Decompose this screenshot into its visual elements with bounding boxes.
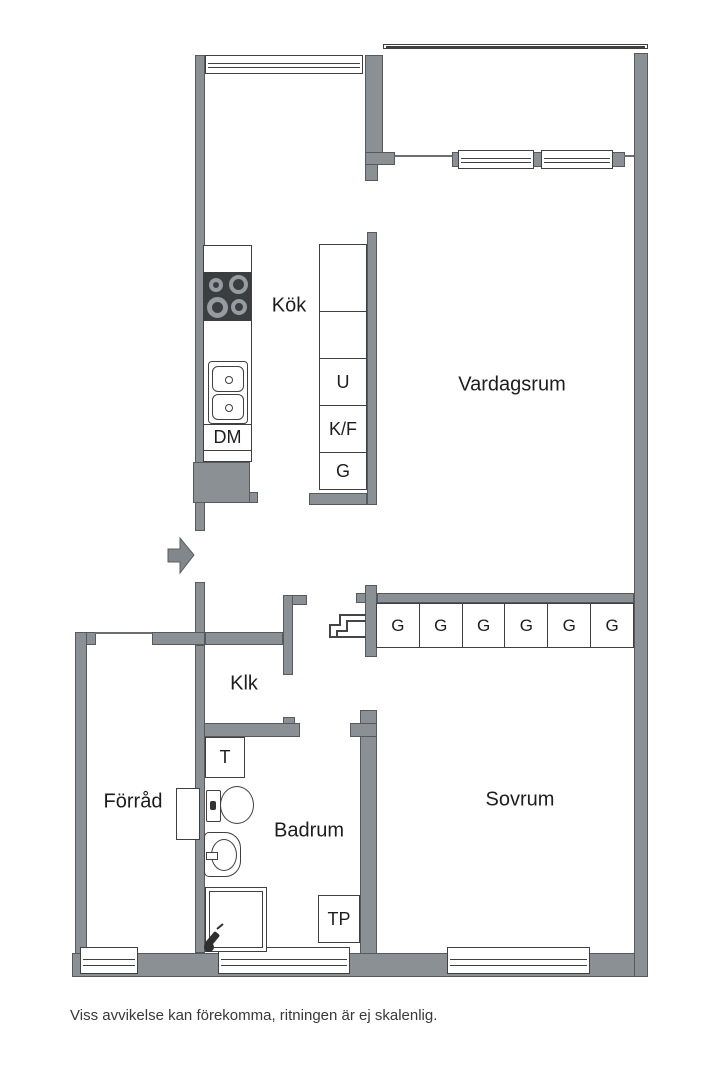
wardrobe-cell: G	[504, 603, 548, 648]
wall-segment	[152, 632, 205, 645]
toilet-button	[210, 801, 216, 810]
balcony-sill-line	[395, 155, 452, 157]
kitchen-cabinet-column: U K/F G	[319, 245, 367, 490]
wall-segment	[195, 723, 300, 737]
wardrobe-label: G	[563, 616, 576, 636]
wardrobe-label: G	[391, 616, 404, 636]
dryer-cabinet: T	[205, 737, 245, 778]
burner-icon	[231, 299, 247, 315]
oven-cell: U	[319, 358, 367, 406]
burner-icon	[207, 297, 228, 318]
balcony-door-window	[458, 150, 534, 169]
fridge-freezer-cell: K/F	[319, 405, 367, 453]
wall-segment	[365, 164, 378, 181]
balcony-door-window	[541, 150, 613, 169]
wall-segment	[205, 632, 283, 645]
wardrobe-cell: G	[462, 603, 506, 648]
washbasin-icon	[204, 832, 241, 877]
wall-segment	[365, 55, 383, 153]
burner-icon	[229, 275, 248, 294]
wall-segment	[634, 53, 648, 977]
balcony-sill-line	[624, 155, 634, 157]
dishwasher-label: DM	[214, 427, 242, 448]
wall-segment	[367, 232, 377, 505]
storage-window	[80, 947, 138, 974]
kitchen-sink-icon	[208, 361, 248, 424]
cabinet-cell	[319, 311, 367, 359]
wall-segment	[249, 492, 258, 503]
room-label-closet: Klk	[230, 673, 258, 696]
disclaimer-text: Viss avvikelse kan förekomma, ritningen …	[70, 1007, 437, 1024]
wardrobe-cell: G	[547, 603, 591, 648]
burner-icon	[209, 278, 223, 292]
cabinet-g-cell: G	[319, 452, 367, 490]
wardrobe-label: G	[520, 616, 533, 636]
wardrobe-label: G	[477, 616, 490, 636]
door-swing-icon	[327, 610, 367, 646]
wall-segment	[360, 710, 377, 954]
wardrobe-label: G	[434, 616, 447, 636]
balcony-edge	[383, 44, 648, 49]
wall-segment	[356, 593, 366, 603]
room-label-living-room: Vardagsrum	[458, 374, 565, 397]
room-label-storage: Förråd	[104, 791, 163, 814]
wall-segment	[309, 493, 367, 505]
oven-label: U	[337, 372, 350, 393]
wall-segment	[292, 595, 307, 605]
wall-segment	[195, 502, 205, 531]
bedroom-window	[447, 947, 590, 974]
sink-basin	[212, 366, 244, 392]
wall-segment	[377, 593, 634, 603]
fridge-freezer-label: K/F	[329, 419, 357, 440]
shower-head-icon	[201, 923, 227, 955]
room-label-bedroom: Sovrum	[486, 789, 555, 812]
floor-plan: DM U K/F G G G G G G G T TP	[0, 0, 720, 1080]
cabinet-label: G	[336, 461, 350, 482]
wardrobe-cell: G	[590, 603, 634, 648]
wardrobe-row: G G G G G G	[377, 603, 634, 648]
room-label-bathroom: Badrum	[274, 820, 344, 843]
wall-segment	[350, 723, 377, 737]
sink-basin	[212, 394, 244, 420]
wardrobe-label: G	[605, 616, 618, 636]
dryer-label: T	[220, 747, 231, 768]
cabinet-cell	[319, 244, 367, 312]
wall-segment	[193, 462, 250, 503]
toilet-bowl	[220, 786, 254, 824]
storage-niche	[176, 788, 200, 840]
laundry-tower-label: TP	[327, 909, 350, 930]
storage-opening-line	[95, 632, 153, 634]
wardrobe-cell: G	[419, 603, 463, 648]
laundry-tower-cabinet: TP	[318, 895, 360, 943]
wall-segment	[283, 595, 293, 675]
washbasin-tap	[206, 852, 218, 860]
dishwasher-cell: DM	[203, 424, 252, 451]
wall-segment	[75, 632, 87, 956]
room-label-kitchen: Kök	[272, 295, 306, 318]
entry-arrow-icon	[166, 536, 196, 576]
stove-icon	[204, 272, 251, 321]
kitchen-window	[205, 55, 363, 74]
wardrobe-cell: G	[376, 603, 420, 648]
